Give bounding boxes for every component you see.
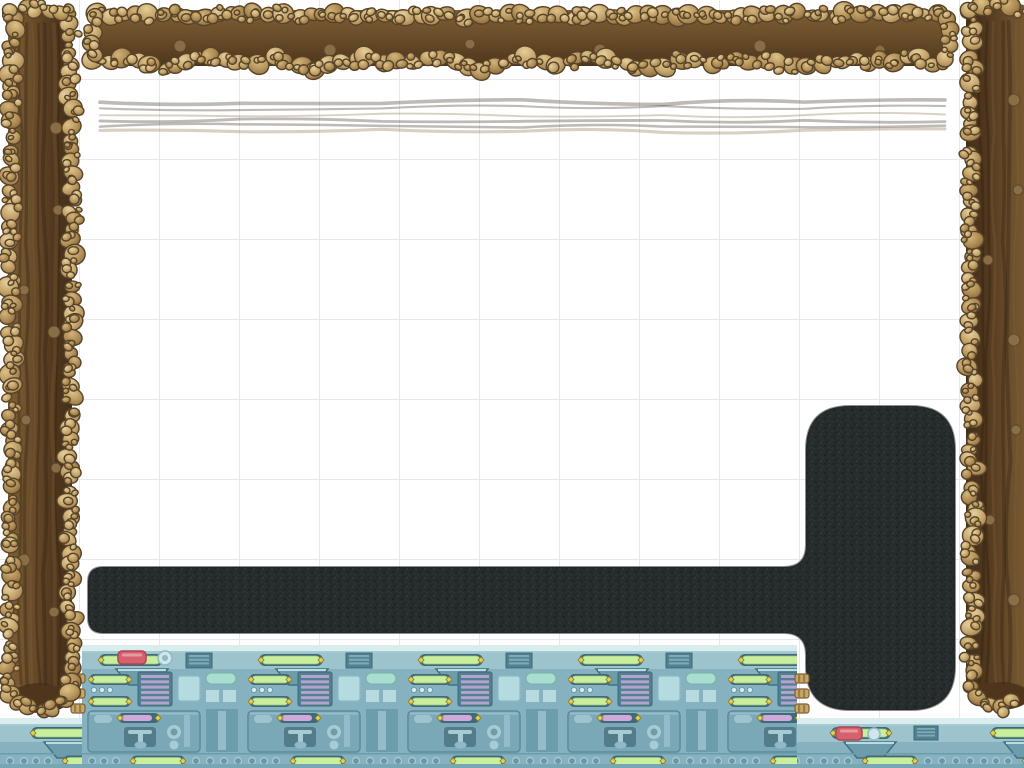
pipe-flange-icon	[795, 689, 809, 698]
dirt-border-left	[0, 0, 88, 720]
dirt-border-right	[955, 0, 1024, 720]
pipe-flange-icon	[71, 704, 85, 713]
red-button	[118, 651, 146, 664]
pipe-flange-icon	[795, 674, 809, 683]
pipe-flange-icon	[795, 704, 809, 713]
machine-platform-main	[71, 645, 809, 768]
game-viewport[interactable]	[0, 0, 1024, 768]
dirt-border-top	[79, 0, 962, 133]
red-button	[836, 727, 862, 740]
